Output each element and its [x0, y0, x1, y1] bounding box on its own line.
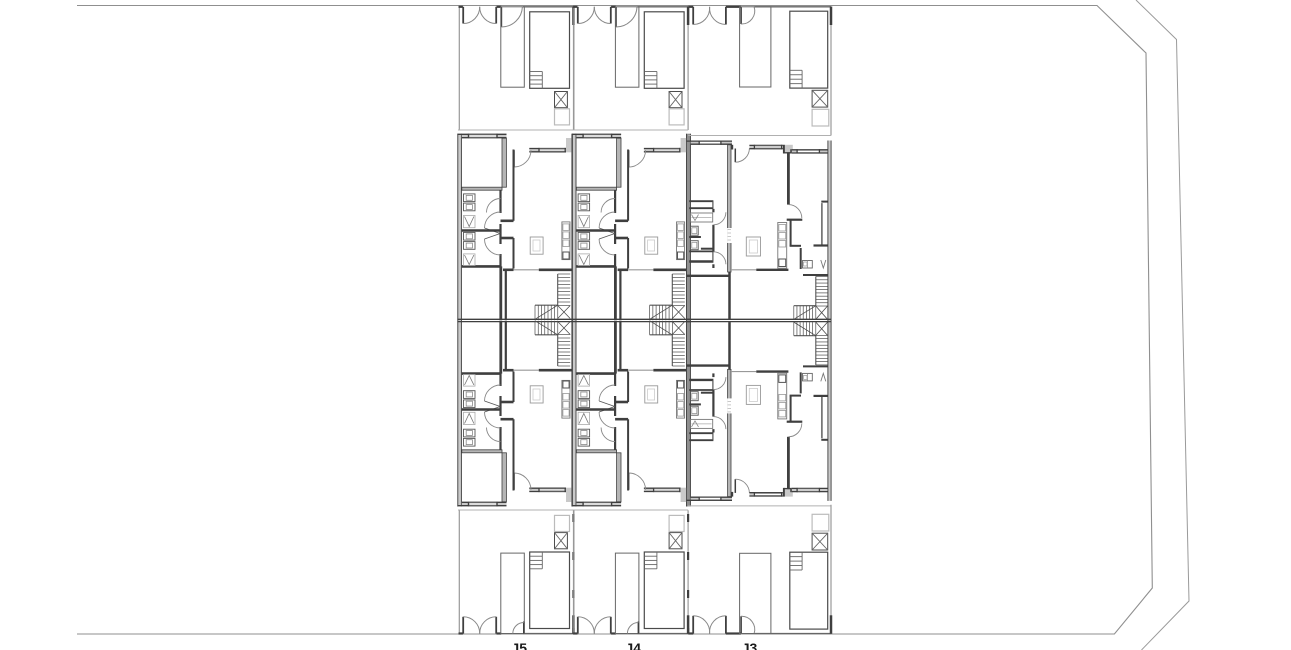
- svg-text:J4: J4: [625, 640, 641, 650]
- svg-text:J3: J3: [742, 640, 758, 650]
- svg-text:J5: J5: [511, 640, 527, 650]
